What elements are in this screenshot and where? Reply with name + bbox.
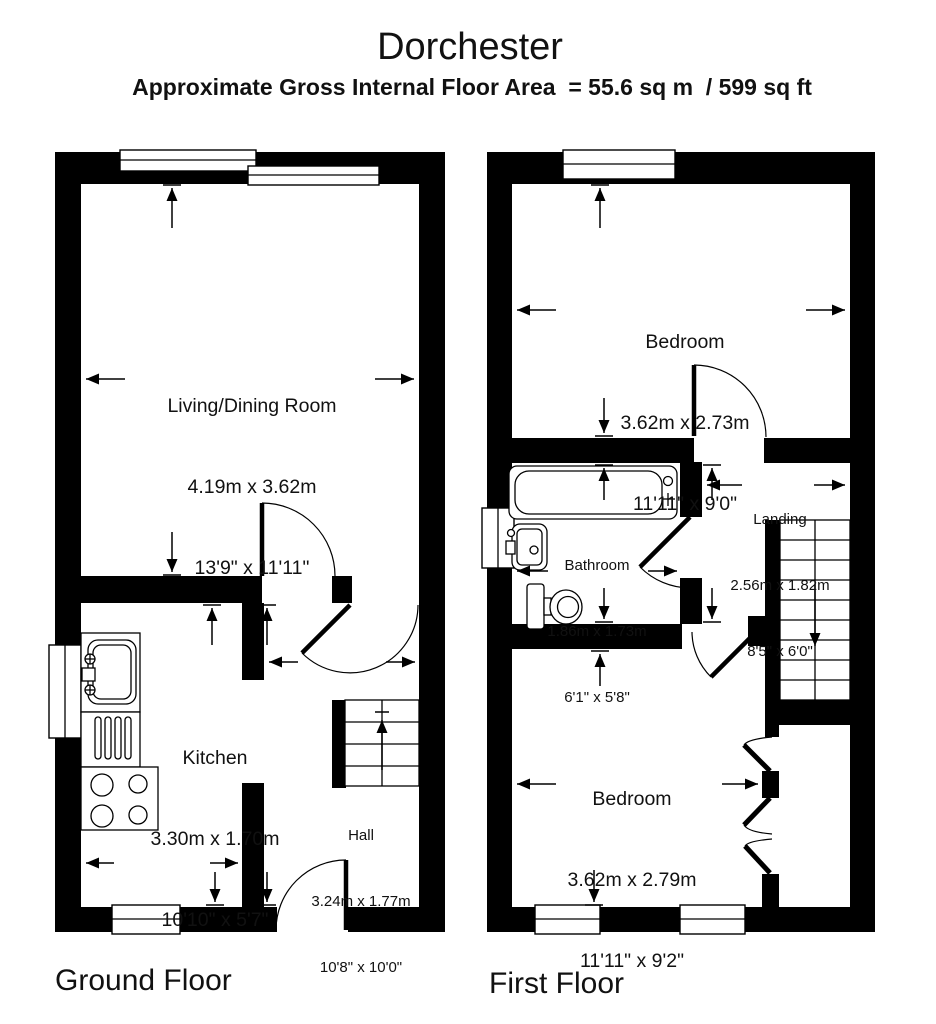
- room-label-kitchen: Kitchen 3.30m x 1.70m 10'10" x 5'7": [151, 691, 280, 988]
- room-size-metric: 1.86m x 1.73m: [547, 621, 646, 643]
- room-name: Bedroom: [621, 329, 750, 356]
- room-label-bathroom: Bathroom 1.86m x 1.73m 6'1" x 5'8": [547, 511, 646, 753]
- first-floor-caption: First Floor: [489, 967, 624, 1001]
- room-name: Hall: [311, 825, 410, 847]
- washbasin-icon: [506, 524, 547, 570]
- room-name: Landing: [730, 509, 829, 531]
- room-size-imperial: 10'8" x 10'0": [311, 957, 410, 979]
- room-label-living-dining: Living/Dining Room 4.19m x 3.62m 13'9" x…: [167, 339, 336, 636]
- room-size-imperial: 10'10" x 5'7": [151, 907, 280, 934]
- room-size-imperial: 8'5" x 6'0": [730, 641, 829, 663]
- room-size-imperial: 6'1" x 5'8": [547, 687, 646, 709]
- room-size-metric: 3.62m x 2.79m: [568, 867, 697, 894]
- room-size-metric: 4.19m x 3.62m: [167, 474, 336, 501]
- stairs-up-icon: [345, 700, 419, 786]
- room-name: Living/Dining Room: [167, 393, 336, 420]
- room-size-metric: 2.56m x 1.82m: [730, 575, 829, 597]
- room-size-metric: 3.30m x 1.70m: [151, 826, 280, 853]
- room-size-metric: 3.24m x 1.77m: [311, 891, 410, 913]
- floorplan-page: Dorchester Approximate Gross Internal Fl…: [0, 0, 936, 1024]
- room-size-metric: 3.62m x 2.73m: [621, 410, 750, 437]
- room-name: Bathroom: [547, 555, 646, 577]
- hob-icon: [81, 767, 158, 830]
- bifold-doors-icon: [744, 737, 772, 873]
- room-label-hall: Hall 3.24m x 1.77m 10'8" x 10'0": [311, 781, 410, 1023]
- sink-icon: [81, 633, 140, 712]
- room-label-landing: Landing 2.56m x 1.82m 8'5" x 6'0": [730, 465, 829, 707]
- room-name: Kitchen: [151, 745, 280, 772]
- room-name: Bedroom: [568, 786, 697, 813]
- room-size-imperial: 13'9" x 11'11": [167, 555, 336, 582]
- drainer-icon: [81, 712, 140, 767]
- ground-floor-caption: Ground Floor: [55, 964, 232, 998]
